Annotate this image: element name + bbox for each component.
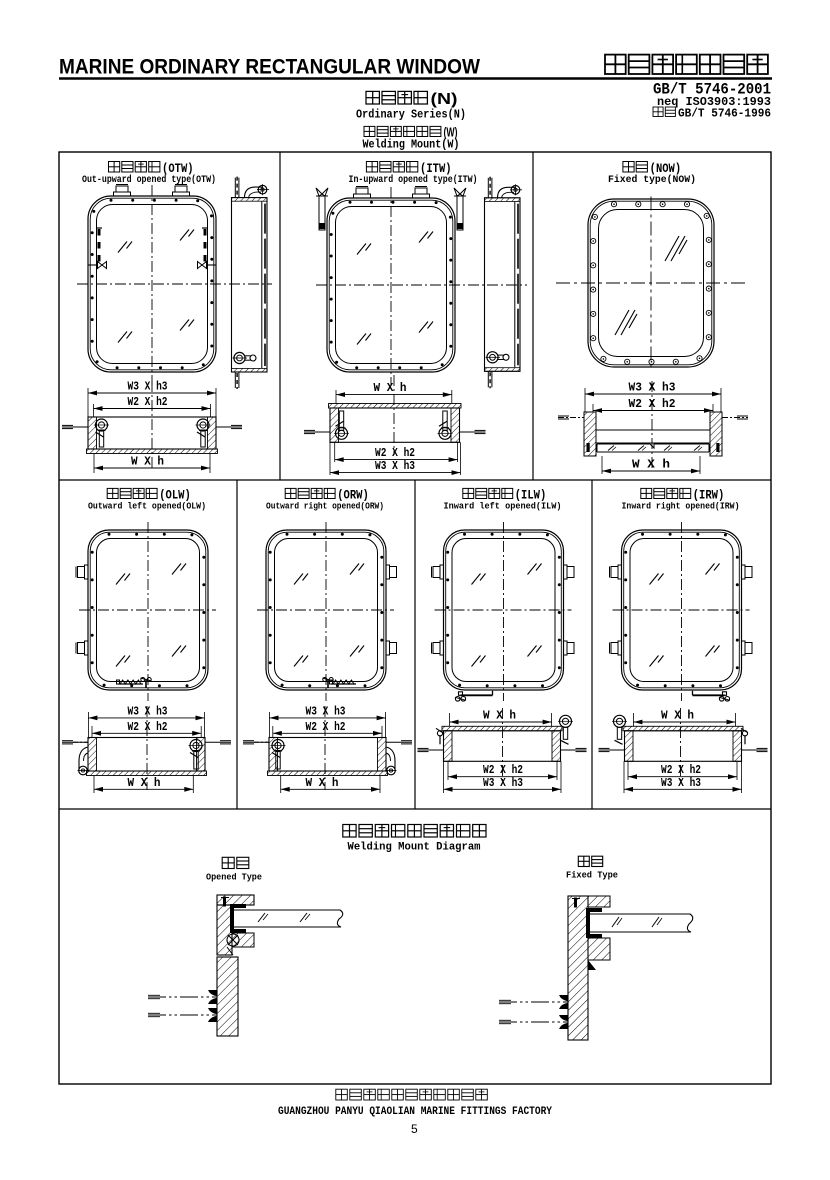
svg-text:W3 X h3: W3 X h3 bbox=[128, 704, 168, 718]
svg-text:W X h: W X h bbox=[128, 776, 161, 790]
svg-text:MARINE ORDINARY RECTANGULAR WI: MARINE ORDINARY RECTANGULAR WINDOW bbox=[59, 56, 480, 79]
svg-text:Fixed Type: Fixed Type bbox=[566, 870, 618, 881]
svg-text:Fixed type(NOW): Fixed type(NOW) bbox=[608, 174, 696, 186]
svg-text:(ITW): (ITW) bbox=[420, 162, 452, 176]
svg-text:5: 5 bbox=[411, 1122, 418, 1136]
svg-text:W3 X h3: W3 X h3 bbox=[483, 776, 523, 790]
svg-text:Inward left opened(ILW): Inward left opened(ILW) bbox=[444, 501, 562, 512]
svg-text:Welding Mount(W): Welding Mount(W) bbox=[363, 139, 460, 152]
svg-text:W2 X h2: W2 X h2 bbox=[375, 446, 415, 460]
svg-text:(W): (W) bbox=[444, 125, 458, 140]
svg-text:Ordinary Series(N): Ordinary Series(N) bbox=[356, 109, 466, 122]
svg-text:GB/T 5746-1996: GB/T 5746-1996 bbox=[678, 107, 771, 121]
svg-text:W3 X h3: W3 X h3 bbox=[306, 704, 346, 718]
svg-text:Welding Mount Diagram: Welding Mount Diagram bbox=[348, 842, 481, 854]
svg-text:W X h: W X h bbox=[661, 709, 694, 723]
svg-text:W3 X h3: W3 X h3 bbox=[128, 380, 168, 394]
svg-text:(OTW): (OTW) bbox=[162, 162, 194, 176]
svg-text:W2 X h2: W2 X h2 bbox=[306, 720, 346, 734]
svg-text:Inward right opened(IRW): Inward right opened(IRW) bbox=[622, 501, 740, 512]
svg-text:W3 X h3: W3 X h3 bbox=[375, 459, 415, 473]
svg-text:W X h: W X h bbox=[483, 709, 516, 723]
svg-text:Opened Type: Opened Type bbox=[206, 872, 262, 883]
svg-text:W2 X h2: W2 X h2 bbox=[128, 720, 168, 734]
svg-text:W X h: W X h bbox=[131, 455, 164, 469]
svg-text:Outward left opened(OLW): Outward left opened(OLW) bbox=[88, 501, 206, 512]
svg-text:W X h: W X h bbox=[374, 381, 407, 395]
svg-text:In-upward opened type(ITW): In-upward opened type(ITW) bbox=[349, 174, 478, 186]
svg-text:Out-upward opened type(OTW): Out-upward opened type(OTW) bbox=[82, 174, 216, 186]
svg-text:W X h: W X h bbox=[306, 776, 339, 790]
svg-text:Outward right opened(ORW): Outward right opened(ORW) bbox=[266, 501, 384, 512]
svg-text:(N): (N) bbox=[431, 91, 458, 108]
svg-text:W X h: W X h bbox=[632, 458, 670, 472]
svg-text:GUANGZHOU PANYU QIAOLIAN MARIN: GUANGZHOU PANYU QIAOLIAN MARINE FITTINGS… bbox=[278, 1106, 552, 1118]
svg-text:W2 X h2: W2 X h2 bbox=[128, 395, 168, 409]
svg-text:(NOW): (NOW) bbox=[650, 162, 682, 176]
svg-text:W3 X h3: W3 X h3 bbox=[661, 776, 701, 790]
